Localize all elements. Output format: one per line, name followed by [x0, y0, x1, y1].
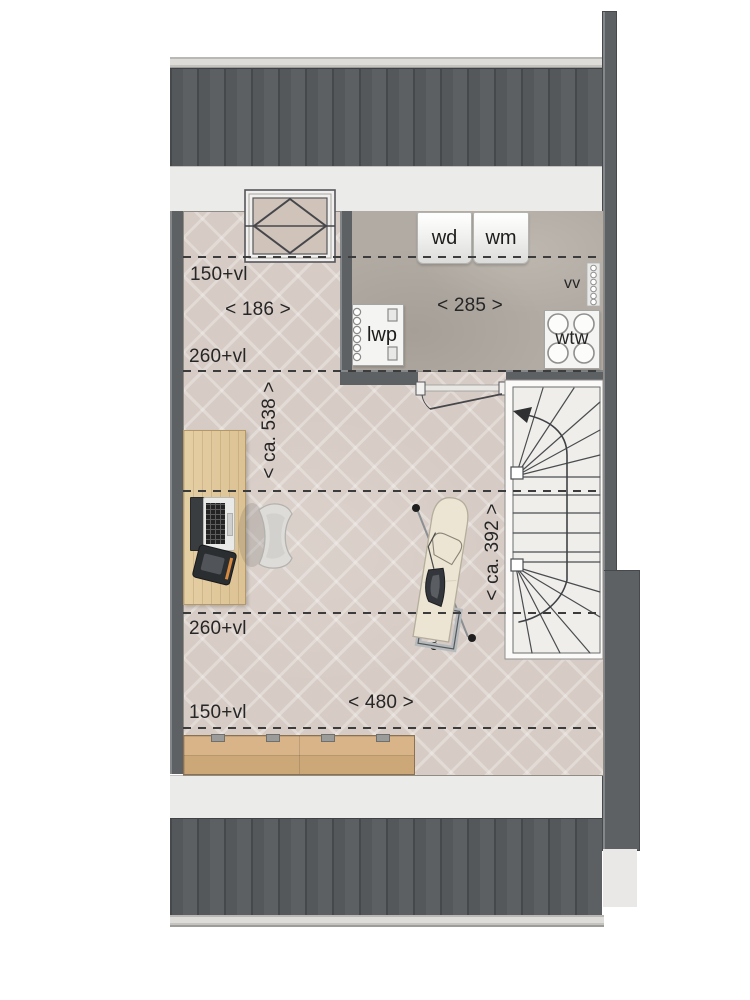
ironing-board — [412, 495, 477, 650]
desk-chair — [238, 503, 292, 568]
heat-recovery-label: wtw — [555, 328, 588, 350]
vent-grille — [587, 263, 600, 306]
dimension-utility-width: < 285 > — [437, 295, 503, 317]
skylight — [245, 190, 335, 262]
heat-pump-connections — [353, 308, 397, 360]
fixtures-overlay — [0, 0, 750, 1000]
vent-label: vv — [564, 275, 580, 293]
dimension-left-depth: < ca. 538 > — [259, 381, 281, 478]
dashed-line-middle — [183, 490, 602, 492]
height-marker-260-bottom: 260+vl — [189, 618, 247, 640]
dashed-line-150-bottom — [183, 727, 602, 729]
dimension-right-depth: < ca. 392 > — [482, 503, 504, 600]
utility-door — [416, 382, 508, 409]
stair-newel-upper — [511, 467, 523, 479]
height-marker-150-top: 150+vl — [190, 264, 248, 286]
floorplan-canvas: wd wm lwp — [0, 0, 750, 1000]
stair-newel-lower — [511, 559, 523, 571]
height-marker-150-bottom: 150+vl — [189, 702, 247, 724]
dashed-line-150-top — [183, 256, 602, 258]
dimension-bottom-width: < 480 > — [348, 692, 414, 714]
staircase — [505, 380, 603, 659]
height-marker-260-top: 260+vl — [189, 346, 247, 368]
dimension-left-width: < 186 > — [225, 299, 291, 321]
dashed-line-260-bottom — [183, 612, 602, 614]
dashed-line-260-top — [183, 370, 602, 372]
